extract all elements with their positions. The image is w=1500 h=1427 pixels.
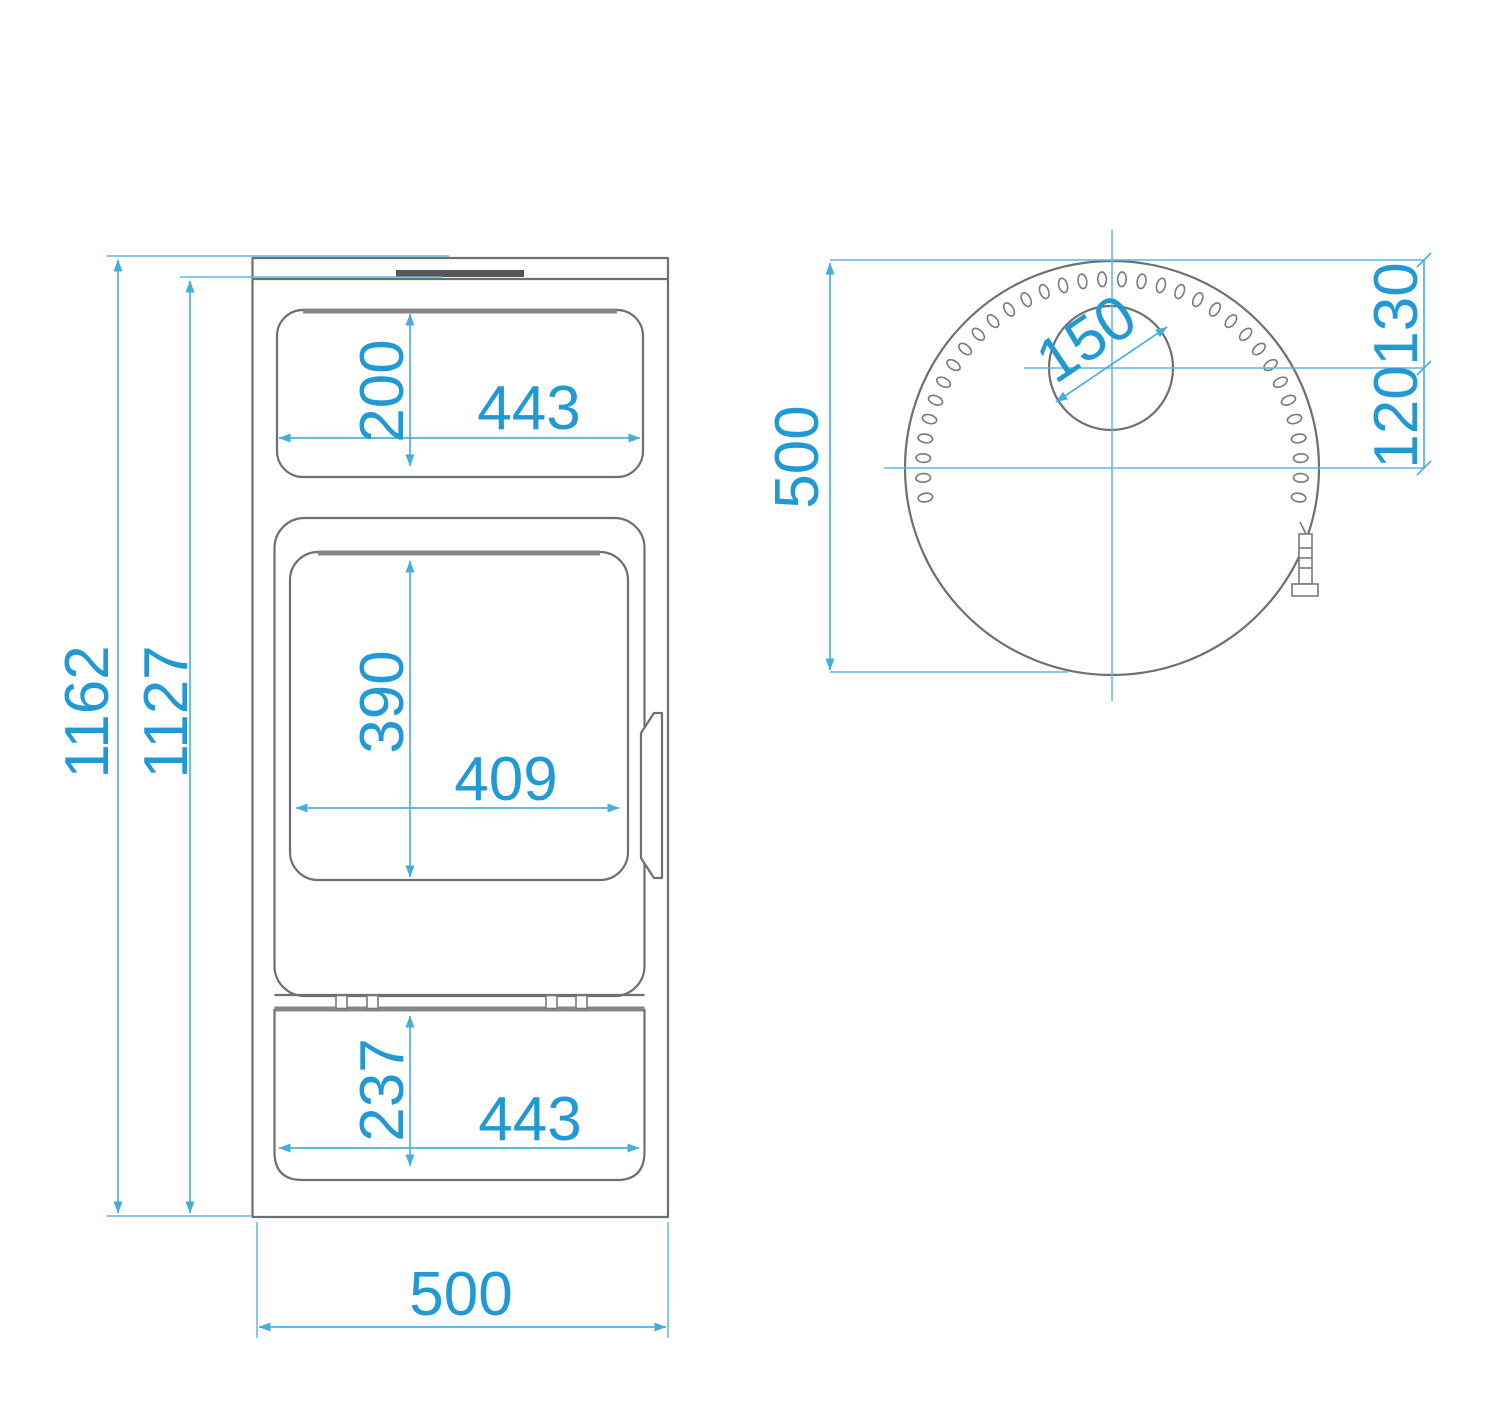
vent-slot <box>917 433 933 444</box>
vent-slot <box>1293 453 1308 462</box>
vent-slot <box>970 326 986 342</box>
vent-slot <box>1272 375 1289 389</box>
dim-label-flue-offset-top: 130 <box>1362 262 1431 365</box>
vent-slot <box>1291 433 1307 444</box>
vent-slot <box>916 473 931 482</box>
vent-slot <box>1251 341 1268 357</box>
stove-body-outline <box>253 258 669 1217</box>
dim-label-drawer-height: 237 <box>348 1038 417 1141</box>
vent-slot <box>917 492 933 503</box>
dim-label-flue-diameter: 150 <box>1024 281 1148 396</box>
dim-label-top-depth: 500 <box>763 405 832 508</box>
door-glass <box>290 552 628 880</box>
vent-slot <box>1117 272 1126 287</box>
vent-slot <box>1237 326 1253 342</box>
hinge-bracket-shaft <box>1299 534 1312 584</box>
vent-slot <box>1291 492 1307 503</box>
vent-slot <box>916 453 931 462</box>
vent-slot <box>1207 301 1222 318</box>
hinge-bracket <box>1292 522 1318 596</box>
vent-slot <box>1077 273 1088 289</box>
vent-slot <box>1019 291 1033 308</box>
vent-slot <box>957 341 974 357</box>
vent-slot <box>1280 394 1297 407</box>
door-handle <box>641 713 662 878</box>
dim-label-overall-height: 1162 <box>53 645 122 778</box>
vent-slot <box>1223 313 1239 330</box>
upper-window <box>277 310 643 477</box>
dim-label-door-glass-width: 409 <box>454 745 557 814</box>
vent-slot <box>1155 277 1167 293</box>
vent-slot <box>1001 301 1016 318</box>
hinge-notch <box>546 996 557 1009</box>
dim-label-flue-offset-center: 120 <box>1362 365 1431 468</box>
vent-slot <box>1173 283 1186 300</box>
vent-slot <box>921 413 937 425</box>
vent-slot <box>1286 413 1302 425</box>
top-view: 500 150 130 120 <box>763 230 1431 701</box>
vent-slot <box>1136 273 1147 289</box>
dim-label-top-window-height: 200 <box>348 339 417 442</box>
dim-label-overall-width: 500 <box>409 1260 512 1329</box>
front-view: 1162 1127 200 443 390 409 237 443 500 <box>53 256 668 1338</box>
vent-slot <box>1191 291 1205 308</box>
dim-label-body-height: 1127 <box>132 645 201 778</box>
hinge-notch <box>367 996 378 1009</box>
hinge-notch <box>336 996 347 1009</box>
vent-slot <box>945 357 962 372</box>
technical-drawing-page: 1162 1127 200 443 390 409 237 443 500 <box>0 0 1500 1427</box>
dim-label-door-glass-height: 390 <box>348 650 417 753</box>
vent-slot <box>1262 357 1279 372</box>
dim-label-top-window-width: 443 <box>477 374 580 443</box>
top-air-control-handle <box>396 270 524 277</box>
hinge-bracket-pin <box>1300 522 1306 534</box>
hinge-notch <box>576 996 587 1009</box>
vent-slot <box>1057 277 1069 293</box>
ash-drawer <box>275 1009 645 1180</box>
dim-label-drawer-width: 443 <box>478 1085 581 1154</box>
vent-slot <box>927 394 944 407</box>
stove-dimension-drawing: 1162 1127 200 443 390 409 237 443 500 <box>0 0 1500 1427</box>
hinge-bracket-base <box>1292 584 1318 596</box>
vent-slot <box>985 313 1001 330</box>
vent-slot <box>1038 283 1051 300</box>
vent-slot <box>935 375 952 389</box>
vent-slot <box>1293 473 1308 482</box>
